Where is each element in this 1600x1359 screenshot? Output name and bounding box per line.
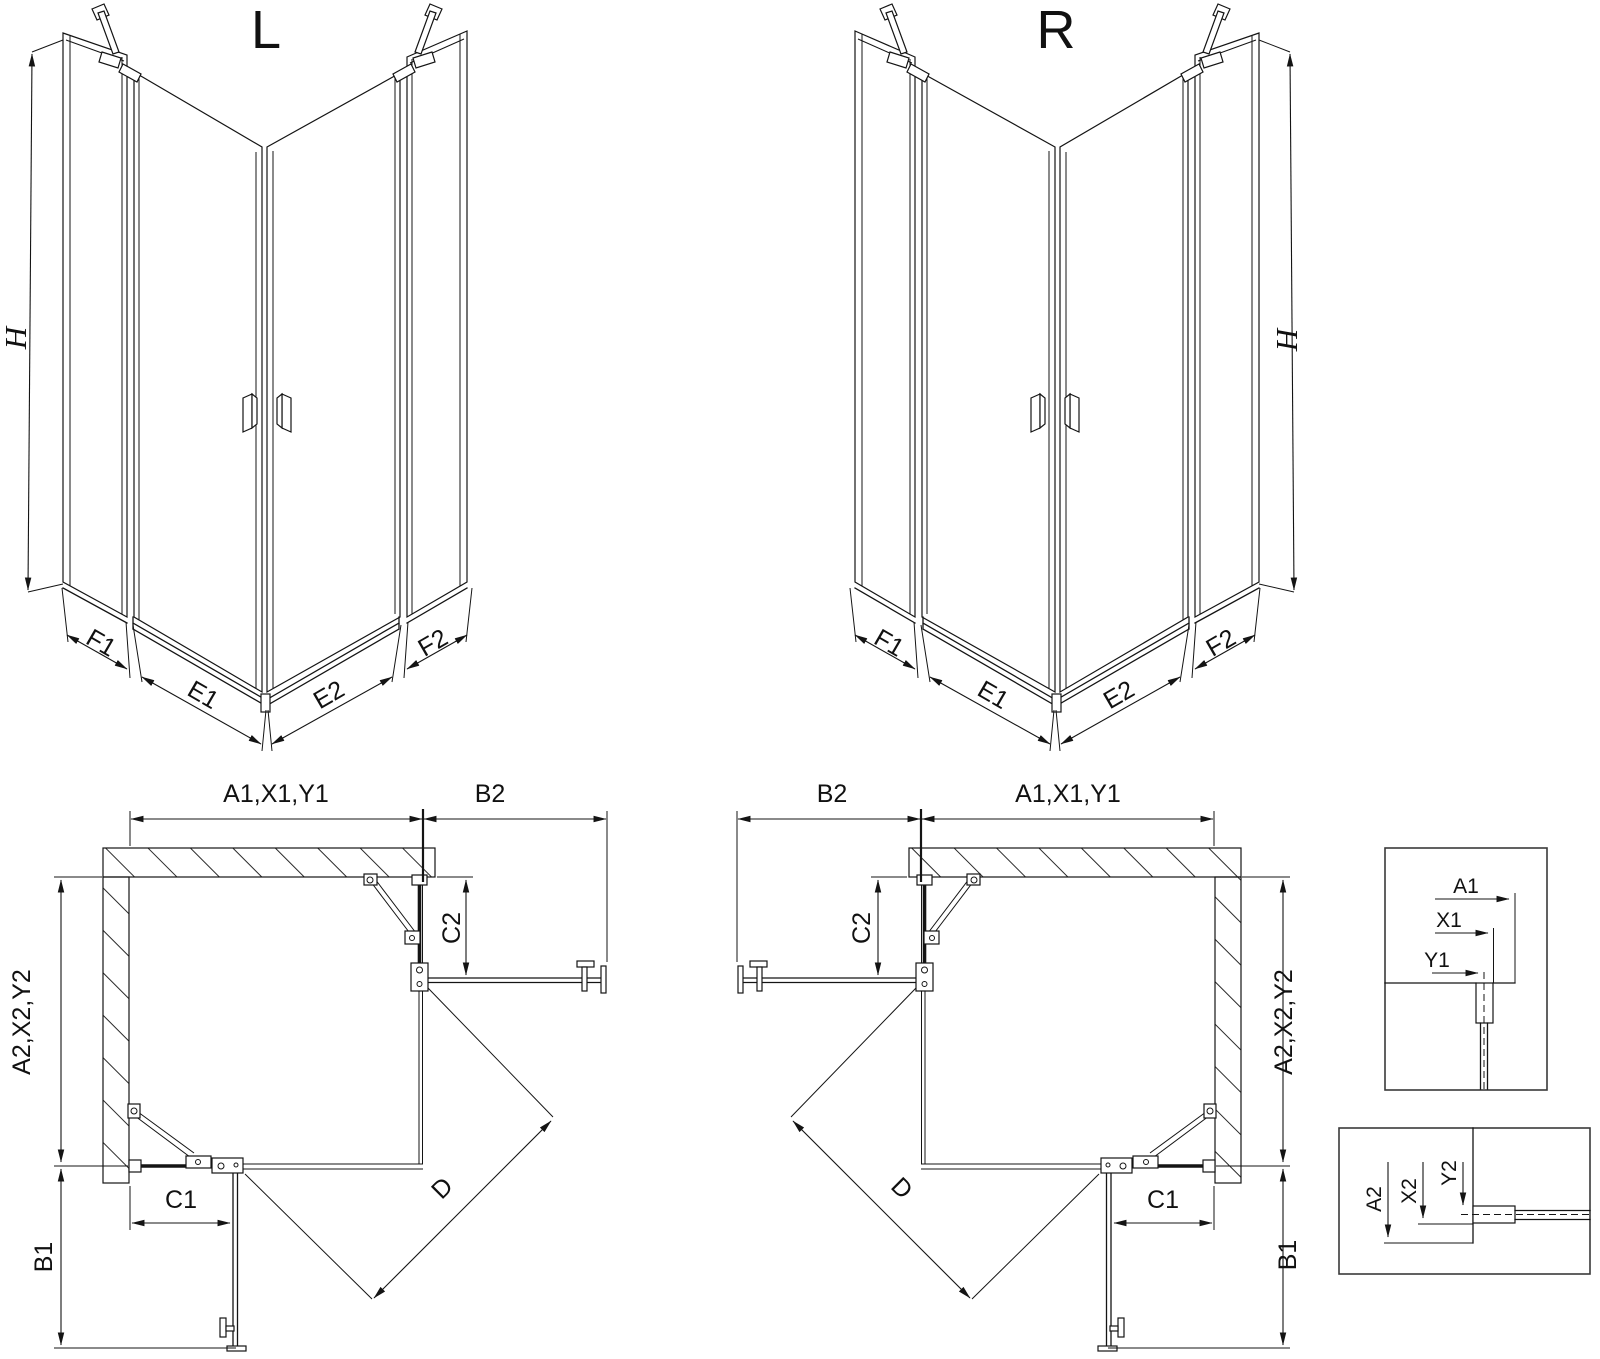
label-d-right-plan: D: [885, 1172, 918, 1205]
label-b1-right-plan: B1: [1274, 1240, 1302, 1271]
label-y1-detail: Y1: [1424, 949, 1450, 972]
label-a1-detail: A1: [1453, 875, 1479, 898]
label-d-left-plan: D: [426, 1172, 459, 1205]
label-e2-right: E2: [1099, 675, 1139, 715]
technical-drawing-page: L H F1 E1 E2 F2 R H F2 E2 E1 F1 A1,X1,Y1…: [0, 0, 1600, 1359]
label-x1-detail: X1: [1436, 909, 1462, 932]
plan-view-left: [54, 809, 607, 1351]
label-c1-right-plan: C1: [1147, 1186, 1179, 1214]
label-b1-left-plan: B1: [30, 1242, 58, 1273]
label-e2-left: E2: [309, 675, 349, 715]
view-title-left: L: [251, 0, 281, 60]
wall-side-left-plan: [103, 877, 129, 1183]
label-a1x1y1-right-plan: A1,X1,Y1: [1015, 780, 1121, 808]
label-e1-left: E1: [183, 675, 223, 715]
label-c2-right-plan: C2: [848, 912, 876, 944]
label-c2-left-plan: C2: [438, 912, 466, 944]
wall-top-left-plan: [103, 848, 435, 877]
plan-view-right: [737, 809, 1290, 1351]
label-e1-right: E1: [973, 675, 1013, 715]
label-a2-detail: A2: [1363, 1186, 1386, 1212]
label-h-right: H: [1269, 327, 1304, 352]
label-y2-detail: Y2: [1438, 1160, 1461, 1186]
label-f1-left: F1: [81, 624, 120, 663]
label-a1x1y1-left-plan: A1,X1,Y1: [223, 780, 329, 808]
shower-enclosure-diagram: L H F1 E1 E2 F2 R H F2 E2 E1 F1 A1,X1,Y1…: [0, 0, 1600, 1359]
label-a2x2y2-right-plan: A2,X2,Y2: [1270, 969, 1298, 1075]
view-title-right: R: [1037, 0, 1076, 60]
label-f1-right: F1: [869, 624, 908, 663]
wall-side-right-plan: [1215, 877, 1241, 1183]
label-b2-right-plan: B2: [817, 780, 848, 808]
label-c1-left-plan: C1: [165, 1186, 197, 1214]
label-b2-left-plan: B2: [475, 780, 506, 808]
label-f2-right: F2: [1201, 624, 1240, 663]
label-f2-left: F2: [413, 624, 452, 663]
label-a2x2y2-left-plan: A2,X2,Y2: [8, 969, 36, 1075]
label-h-left: H: [0, 325, 33, 350]
wall-top-right-plan: [909, 848, 1241, 877]
label-x2-detail: X2: [1398, 1178, 1421, 1204]
